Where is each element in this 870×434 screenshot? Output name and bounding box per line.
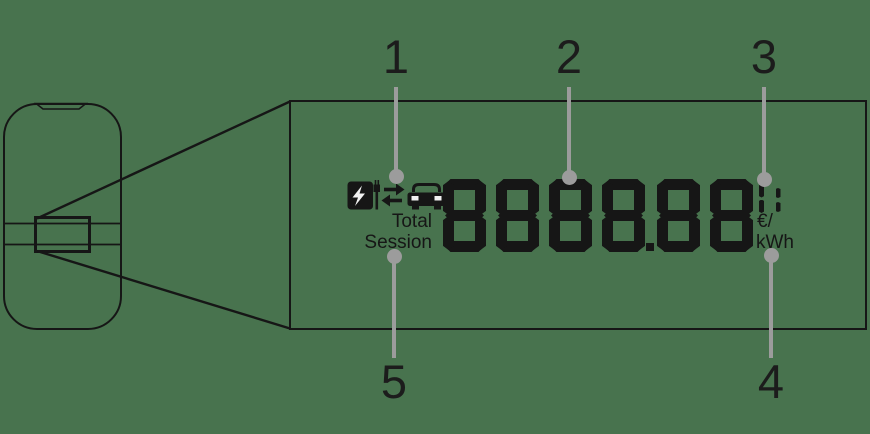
indicator-colon: [776, 202, 781, 212]
callout-dot-5: [387, 249, 402, 264]
segment-digit: [496, 179, 539, 252]
total-label: Total: [330, 212, 432, 232]
callout-dot-2: [562, 170, 577, 185]
segment-digit: [657, 179, 700, 252]
segment-digit: [443, 179, 486, 252]
session-label: Session: [330, 233, 432, 253]
indicator-colon: [776, 188, 781, 198]
callout-number-3: 3: [724, 33, 804, 80]
callout-line-2: [567, 87, 571, 177]
callout-line-3: [762, 87, 766, 179]
callout-line-4: [769, 255, 773, 358]
diagram-canvas: Total Session €/ kWh 12345: [0, 0, 870, 434]
callout-dot-4: [764, 248, 779, 263]
callout-line-1: [394, 87, 398, 176]
segment-digit: [602, 179, 645, 252]
callout-number-5: 5: [354, 358, 434, 405]
callout-number-1: 1: [356, 33, 436, 80]
currency-unit-label: €/: [757, 212, 773, 232]
segment-digit: [549, 179, 592, 252]
callout-dot-1: [389, 169, 404, 184]
callout-number-2: 2: [529, 33, 609, 80]
callout-line-5: [392, 256, 396, 358]
indicator-digit-one: [759, 200, 764, 214]
callout-dot-3: [757, 172, 772, 187]
segment-digit: [710, 179, 753, 252]
callout-number-4: 4: [731, 358, 811, 405]
decimal-point: [646, 243, 654, 251]
device-display-window: [34, 216, 91, 253]
